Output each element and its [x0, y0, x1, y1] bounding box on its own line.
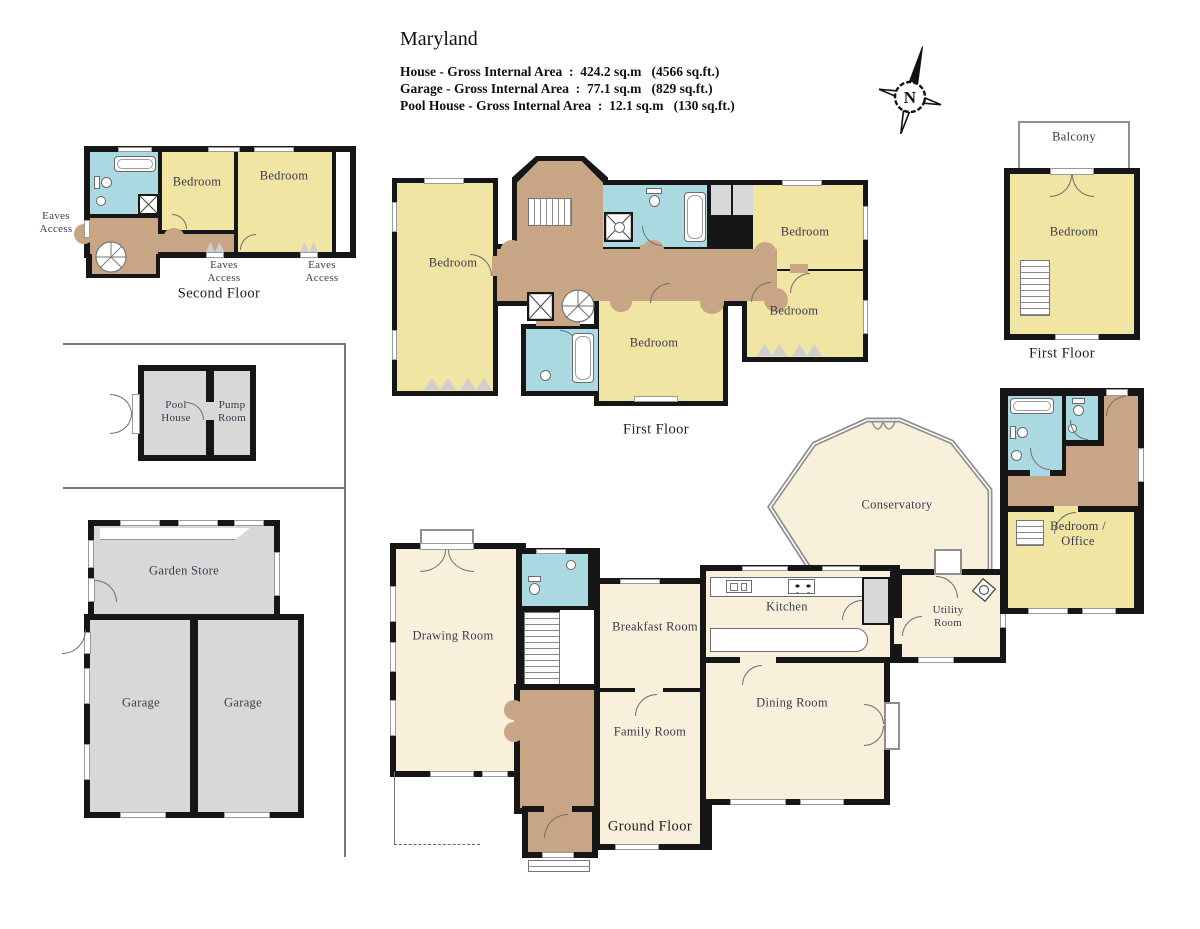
sink-icon	[540, 370, 551, 381]
toilet-icon	[529, 583, 540, 595]
door-arc-icon	[62, 630, 86, 654]
door-opening	[742, 282, 751, 300]
conservatory-lobby	[934, 549, 962, 575]
site-boundary	[63, 343, 345, 345]
kitchen-island	[710, 628, 868, 652]
window	[918, 657, 954, 663]
window	[118, 147, 152, 152]
room-label: Bedroom	[630, 336, 679, 351]
cupboard-icon	[527, 292, 554, 321]
window	[863, 206, 868, 240]
window	[1055, 334, 1099, 340]
bay-window	[884, 702, 900, 750]
floor-caption: First Floor	[623, 422, 689, 439]
sink-icon	[1011, 450, 1022, 461]
garden-store-step	[100, 528, 250, 540]
window	[178, 520, 218, 526]
room-label: Utility Room	[933, 604, 964, 630]
door-opening	[132, 394, 140, 434]
stairs-icon	[1020, 260, 1050, 316]
door-opening	[542, 852, 574, 858]
eaves-hatch	[300, 252, 318, 258]
door-opening	[1050, 168, 1094, 175]
second-floor-eaves-strip	[336, 152, 350, 252]
window	[120, 520, 160, 526]
room-label: Kitchen	[766, 600, 808, 615]
window	[424, 178, 464, 184]
eaves-hatch	[206, 252, 224, 258]
window	[88, 540, 94, 568]
hall-scallop	[504, 722, 524, 742]
window	[274, 552, 280, 596]
door-opening	[635, 686, 663, 694]
landing-scallop	[700, 292, 724, 314]
toilet-icon	[646, 188, 662, 194]
toilet-icon	[1073, 405, 1084, 416]
room-label: Garage	[122, 696, 160, 711]
door-opening	[1106, 389, 1128, 396]
door-opening	[740, 655, 776, 665]
window	[84, 744, 90, 780]
toilet-icon	[1017, 427, 1028, 438]
stair-well	[560, 610, 594, 690]
room-label: Bedroom	[781, 225, 830, 240]
page-title: Maryland	[400, 28, 478, 51]
window	[392, 330, 397, 360]
window	[208, 147, 240, 152]
window	[742, 566, 788, 571]
dining-room	[706, 663, 884, 799]
room-label: Pool House	[161, 399, 191, 425]
eaves-access-label: Eaves Access	[208, 259, 241, 285]
landing-scallop	[164, 228, 184, 244]
sink-icon	[614, 222, 625, 233]
window	[536, 549, 566, 554]
window	[234, 520, 264, 526]
window	[390, 586, 396, 622]
door-opening	[1030, 470, 1050, 476]
toilet-icon	[528, 576, 541, 582]
balcony-label: Balcony	[1052, 130, 1096, 145]
floor-caption: Second Floor	[178, 286, 261, 303]
window	[430, 771, 474, 777]
stairs-icon	[524, 612, 560, 690]
window	[254, 147, 294, 152]
room-label: Bedroom	[1050, 225, 1099, 240]
window	[1082, 608, 1116, 614]
room-label: Dining Room	[756, 696, 828, 711]
stairs-icon	[528, 198, 572, 226]
hall-scallop	[504, 700, 524, 720]
room-label: Conservatory	[862, 498, 933, 513]
window	[390, 700, 396, 736]
window	[1028, 608, 1068, 614]
spiral-stairs-icon	[560, 288, 596, 324]
window	[615, 844, 659, 850]
garage-area-line: Garage - Gross Internal Area : 77.1 sq.m…	[400, 81, 713, 97]
room-label: Bedroom	[260, 169, 309, 184]
site-boundary	[63, 487, 345, 489]
room-label: Breakfast Room	[612, 620, 698, 635]
compass-north-label: N	[904, 88, 917, 108]
window	[634, 396, 678, 402]
bath-icon	[572, 333, 594, 383]
door-opening	[650, 274, 668, 283]
room-label: Bedroom	[429, 256, 478, 271]
terrace-dashed-line	[394, 844, 480, 845]
room-label: Garden Store	[149, 564, 219, 579]
door-opening	[790, 264, 808, 273]
door-opening	[88, 578, 95, 602]
sink-icon	[96, 196, 106, 206]
bath-icon	[684, 192, 706, 242]
window	[482, 771, 508, 777]
landing-scallop	[754, 242, 776, 262]
landing-scallop	[500, 240, 524, 264]
door-opening	[420, 543, 474, 550]
rear-hall	[1008, 476, 1104, 506]
drawing-room	[396, 549, 520, 771]
eaves-access-label: Eaves Access	[306, 259, 339, 285]
door-arc-icon	[110, 394, 132, 414]
garage-right	[198, 620, 298, 812]
room-label: Bedroom	[173, 175, 222, 190]
room-label: Garage	[224, 696, 262, 711]
toilet-icon	[649, 195, 660, 207]
window	[863, 300, 868, 334]
door-opening	[206, 402, 214, 420]
toilet-icon	[1072, 398, 1085, 404]
hob-icon	[788, 579, 815, 594]
toilet-icon	[1010, 426, 1016, 439]
sink-icon	[566, 560, 576, 570]
window	[1138, 448, 1144, 482]
entrance-steps-icon	[528, 860, 590, 872]
cupboard-icon	[138, 194, 159, 215]
washing-machine-icon	[972, 578, 996, 602]
floorplan-canvas: Maryland House - Gross Internal Area : 4…	[0, 0, 1200, 929]
stairs-icon	[1016, 520, 1044, 546]
window	[730, 799, 786, 805]
toilet-icon	[94, 176, 100, 189]
pool-house-area-line: Pool House - Gross Internal Area : 12.1 …	[400, 98, 735, 114]
door-opening	[894, 618, 902, 644]
door-opening	[492, 256, 499, 276]
terrace-line	[394, 772, 395, 844]
garage-left	[90, 620, 190, 812]
window	[392, 202, 397, 232]
room-label: Bedroom	[770, 304, 819, 319]
door-arc-icon	[110, 414, 132, 434]
window	[620, 579, 660, 584]
floor-caption: First Floor	[1029, 346, 1095, 363]
bath-icon	[1010, 398, 1054, 414]
door-opening	[640, 245, 658, 253]
closet-divider	[731, 185, 733, 215]
room-label: Pump Room	[218, 399, 246, 425]
eaves-access-label: Eaves Access	[40, 210, 73, 236]
landing-scallop	[610, 292, 632, 312]
window	[800, 799, 844, 805]
entrance-hall	[520, 690, 596, 808]
window	[84, 668, 90, 704]
rear-hall	[1066, 446, 1104, 480]
window	[782, 180, 822, 186]
window	[822, 566, 860, 571]
door-opening	[544, 800, 572, 814]
breakfast-room	[600, 584, 700, 688]
house-area-line: House - Gross Internal Area : 424.2 sq.m…	[400, 64, 719, 80]
spiral-stairs-icon	[94, 240, 128, 274]
window	[224, 812, 270, 818]
window	[390, 642, 396, 672]
bath-icon	[114, 156, 156, 172]
first-floor-bedroom-west	[397, 183, 493, 391]
room-label: Family Room	[614, 725, 686, 740]
kitchen-cupboard	[862, 577, 890, 625]
room-label: Bedroom / Office	[1050, 519, 1106, 549]
eaves-hatch	[84, 220, 90, 238]
room-label: Drawing Room	[412, 629, 493, 644]
toilet-icon	[101, 177, 112, 188]
window	[120, 812, 166, 818]
kitchen-sink-icon	[726, 580, 752, 593]
site-boundary	[344, 343, 346, 857]
floor-caption: Ground Floor	[608, 819, 692, 836]
